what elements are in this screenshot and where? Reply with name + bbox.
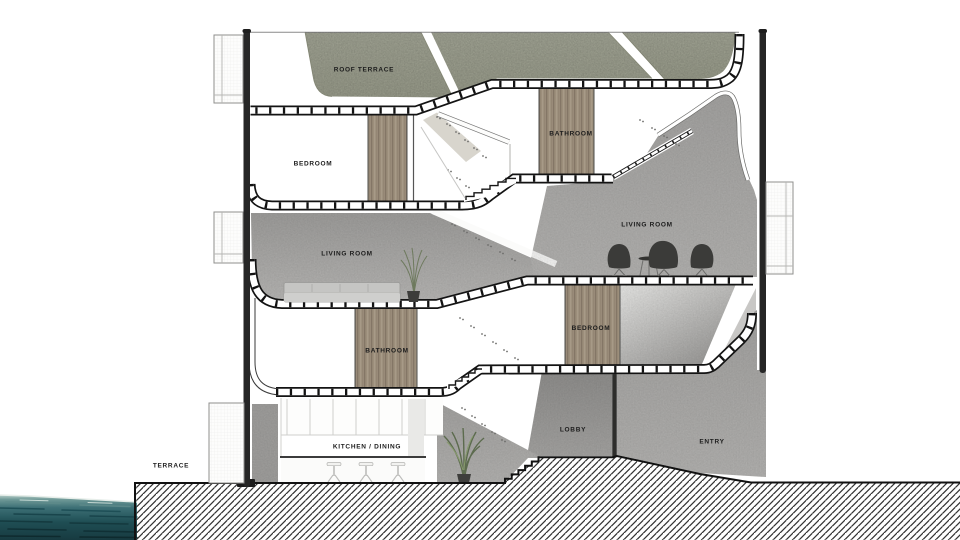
svg-text:BATHROOM: BATHROOM (365, 348, 408, 355)
svg-text:ROOF TERRACE: ROOF TERRACE (334, 67, 394, 74)
svg-text:LIVING ROOM: LIVING ROOM (321, 251, 372, 258)
svg-text:BEDROOM: BEDROOM (294, 161, 333, 168)
svg-text:ENTRY: ENTRY (699, 439, 724, 446)
svg-text:BEDROOM: BEDROOM (572, 325, 611, 332)
svg-text:KITCHEN / DINING: KITCHEN / DINING (333, 444, 401, 451)
svg-text:BATHROOM: BATHROOM (549, 131, 592, 138)
svg-text:LOBBY: LOBBY (560, 427, 586, 434)
svg-text:TERRACE: TERRACE (153, 463, 189, 470)
svg-text:LIVING ROOM: LIVING ROOM (621, 222, 672, 229)
